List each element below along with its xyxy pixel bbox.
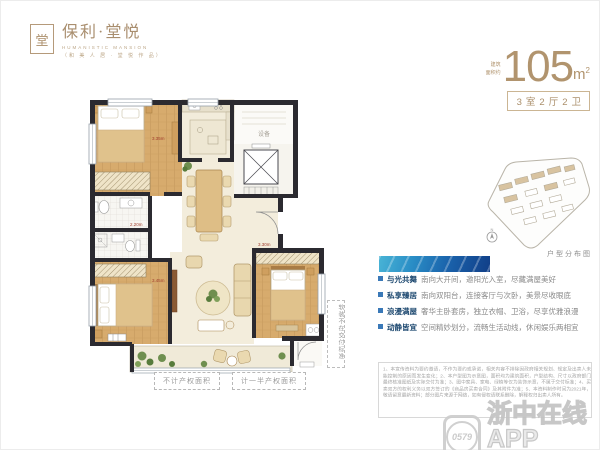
elevator bbox=[244, 144, 278, 184]
equipment-label: 设备 bbox=[258, 130, 270, 138]
feature-desc: 奢华主卧套房，独立衣帽、卫浴，尽享优雅浪漫 bbox=[421, 306, 579, 317]
watermark: 0579 浙中在线APP 就在你身边 bbox=[443, 402, 600, 450]
feature-item: 私享臻居 南向双阳台，连接客厅与次卧，美景尽收眼底 bbox=[378, 290, 594, 301]
feature-list: 与光共舞 南向大开间，邀阳光入室，尽藏满屋美好 私享臻居 南向双阳台，连接客厅与… bbox=[378, 274, 594, 338]
siteplan: N bbox=[475, 155, 595, 251]
brand-seal-icon: 堂 bbox=[30, 24, 54, 54]
svg-text:N: N bbox=[491, 227, 494, 232]
watermark-title: 浙中在线APP bbox=[487, 402, 600, 450]
bullet-icon bbox=[378, 292, 383, 297]
area-prefix: 建筑面积约 bbox=[486, 62, 501, 77]
area-value: 105 bbox=[503, 48, 573, 85]
page: 堂 保利·堂悦 HUMANISTIC MANSION （和 美 人 居 · 堂 … bbox=[0, 0, 600, 450]
brand-subtitle: （和 美 人 居 · 堂 悦 作 品） bbox=[62, 52, 163, 59]
watermark-code: 0579 bbox=[446, 421, 478, 450]
water-image-strip bbox=[379, 256, 490, 272]
brand-logo: 堂 保利·堂悦 HUMANISTIC MANSION （和 美 人 居 · 堂 … bbox=[30, 24, 163, 59]
kitchen-furniture bbox=[182, 100, 234, 154]
disclaimer-text: 1、本宣传资料为要约邀请，不作为要约或承诺，相关内容不排除因政府相关规划、规定及… bbox=[383, 366, 591, 399]
feature-item: 与光共舞 南向大开间，邀阳光入室，尽藏满屋美好 bbox=[378, 274, 594, 285]
dim-4: 3.30m bbox=[258, 242, 271, 247]
siteplan-caption: 户型分布图 bbox=[512, 249, 592, 259]
watermark-logo-icon: 0579 bbox=[443, 415, 481, 450]
dim-3: 3.45m bbox=[152, 278, 165, 283]
brand-name-en: HUMANISTIC MANSION bbox=[62, 45, 163, 50]
delivery-note: 软装不在交付标准 bbox=[327, 300, 345, 368]
feature-desc: 南向大开间，邀阳光入室，尽藏满屋美好 bbox=[421, 274, 556, 285]
feature-title: 浪漫满屋 bbox=[387, 306, 417, 317]
layout-tag: 3室2厅2卫 bbox=[507, 91, 590, 111]
bullet-icon bbox=[378, 276, 383, 281]
feature-title: 私享臻居 bbox=[387, 290, 417, 301]
feature-title: 动静皆宜 bbox=[387, 322, 417, 333]
area-unit: m2 bbox=[573, 66, 590, 83]
bullet-icon bbox=[378, 324, 383, 329]
legend-non-property-area: 不计产权面积 bbox=[154, 372, 220, 390]
hall-floor bbox=[232, 198, 278, 252]
brand-name: 保利·堂悦 bbox=[62, 24, 163, 42]
feature-item: 动静皆宜 空间精妙划分，流畅生活动线，休闲娱乐两相宜 bbox=[378, 322, 594, 333]
feature-item: 浪漫满屋 奢华主卧套房，独立衣帽、卫浴，尽享优雅浪漫 bbox=[378, 306, 594, 317]
feature-desc: 空间精妙划分，流畅生活动线，休闲娱乐两相宜 bbox=[421, 322, 579, 333]
compass-icon: N bbox=[487, 227, 497, 242]
floorplan: 设备 bbox=[86, 94, 346, 378]
dim-1: 3.35m bbox=[152, 136, 165, 141]
legend-half-property-area: 计一半产权面积 bbox=[232, 372, 306, 390]
feature-title: 与光共舞 bbox=[387, 274, 417, 285]
siteplan-svg: N bbox=[475, 155, 595, 251]
bullet-icon bbox=[378, 308, 383, 313]
area-headline: 建筑面积约 105 m2 3室2厅2卫 bbox=[430, 48, 590, 111]
floorplan-svg: 设备 bbox=[86, 94, 346, 378]
dim-2: 2.20m bbox=[130, 222, 143, 227]
feature-desc: 南向双阳台，连接客厅与次卧，美景尽收眼底 bbox=[421, 290, 571, 301]
